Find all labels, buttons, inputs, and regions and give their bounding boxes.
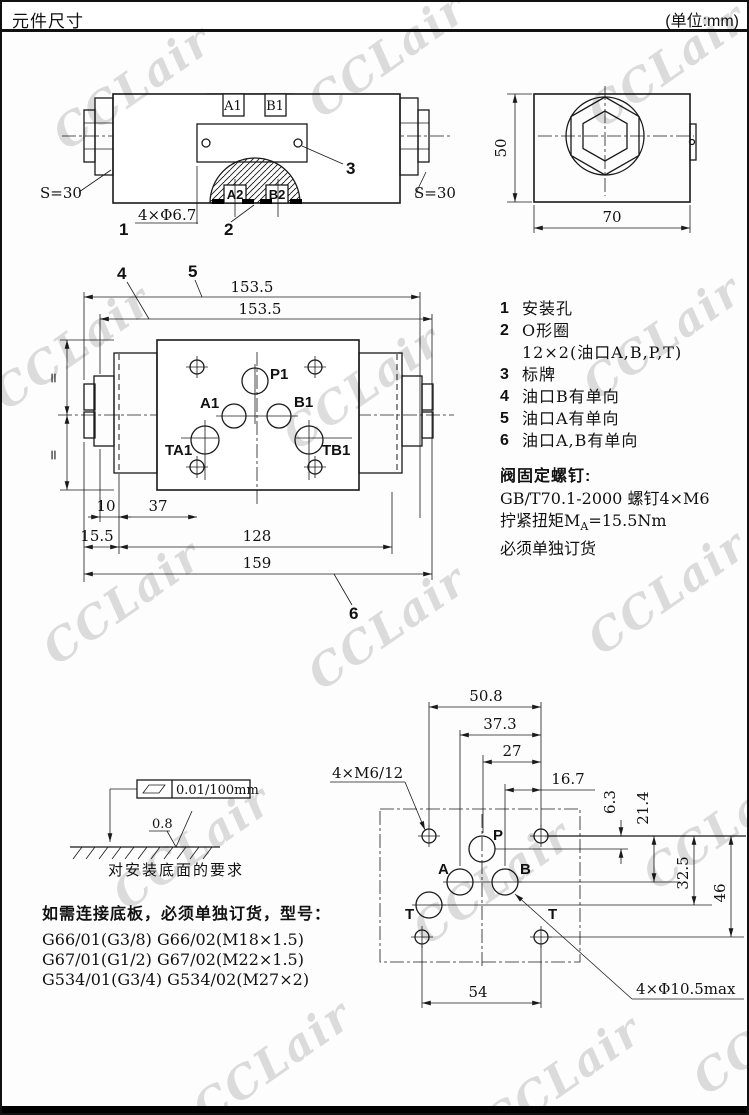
port-a-label: A <box>438 861 449 878</box>
nameplate <box>197 124 307 162</box>
subplate-intro: 如需连接底板，必须单独订货，型号： <box>42 900 372 924</box>
side-view-drawing: A1 B1 3 A2 B2 2 4×Φ6.7 1 <box>40 94 456 239</box>
oring-seal <box>212 199 224 204</box>
dim-153-top: 153.5 <box>231 278 274 296</box>
callout-2: 2 <box>224 220 233 239</box>
face-body-outline <box>157 340 359 490</box>
note-item: 2O形圈 <box>500 320 749 342</box>
bottom-border-bar <box>2 1106 747 1113</box>
oring-seal <box>290 199 302 204</box>
port-b1-top-label: B1 <box>266 99 284 114</box>
subplate-model: G534/01(G3/4) G534/02(M27×2) <box>42 970 372 990</box>
callout-5: 5 <box>188 262 197 281</box>
oring-seal <box>260 199 272 204</box>
fixing-screw-note: 阀固定螺钉: GB/T70.1-2000 螺钉4×M6 拧紧扭矩MA=15.5N… <box>500 466 749 560</box>
order-note: 必须单独订货 <box>500 538 749 560</box>
callout-6: 6 <box>349 604 358 623</box>
subplate-order-note: 如需连接底板，必须单独订货，型号： G66/01(G3/8) G66/02(M1… <box>42 900 372 990</box>
dim-15-5: 15.5 <box>80 527 113 545</box>
hex-size-right: S=30 <box>414 184 456 202</box>
note-item: 6油口A,B有单向 <box>500 430 749 452</box>
ground-hatch <box>73 847 212 859</box>
hex-size-left: S=30 <box>40 184 82 202</box>
dim-37-3: 37.3 <box>483 715 516 733</box>
end-view-drawing: 50 70 <box>492 86 696 233</box>
dim-50-8: 50.8 <box>469 687 502 705</box>
port-t-left-label: T <box>405 906 414 923</box>
oring-seal <box>242 199 254 204</box>
bottom-ports <box>412 836 522 918</box>
note-item: 1安装孔 <box>500 298 749 320</box>
dim-27: 27 <box>502 742 521 760</box>
equal-mark-top: = <box>46 372 62 384</box>
screw-note-title: 阀固定螺钉: <box>500 466 749 488</box>
sheet-header: 元件尺寸 (单位:mm) <box>2 2 747 32</box>
port-a1-label: A1 <box>200 395 219 412</box>
torque-spec: 拧紧扭矩MA=15.5Nm <box>500 510 749 538</box>
subplate-model: G66/01(G3/8) G66/02(M18×1.5) <box>42 930 372 950</box>
dim-32-5: 32.5 <box>674 856 692 889</box>
callout-3: 3 <box>346 159 355 178</box>
flatness-symbol: 0.01/100mm 0.8 <box>70 780 259 859</box>
unit-label: (单位:mm) <box>665 7 739 31</box>
dim-70: 70 <box>602 208 621 226</box>
port-p-label: P <box>493 827 503 844</box>
port-b1-label: B1 <box>294 394 313 411</box>
port-ta1-label: TA1 <box>165 442 192 459</box>
note-item: 5油口A有单向 <box>500 408 749 430</box>
dim-128: 128 <box>243 527 272 545</box>
flatness-tolerance: 0.01/100mm <box>176 783 259 798</box>
note-item: 3标牌 <box>500 364 749 386</box>
mounting-surface-caption: 对安装底面的要求 <box>108 859 244 880</box>
port-b-label: B <box>520 861 531 878</box>
face-view-drawing: P1 A1 B1 TA1 TB1 153.5 153.5 4 5 = <box>46 262 454 623</box>
mounting-hole-dim: 4×Φ6.7 <box>138 206 196 224</box>
port-diameter-label: 4×Φ10.5max <box>636 980 736 998</box>
dim-54: 54 <box>468 983 487 1001</box>
item-notes-list: 1安装孔 2O形圈 12×2(油口A,B,P,T) 3标牌 4油口B有单向 5油… <box>500 298 749 452</box>
mounting-face-outline <box>380 809 580 962</box>
port-p1-label: P1 <box>270 366 288 383</box>
note-item: 12×2(油口A,B,P,T) <box>500 342 749 364</box>
dim-50: 50 <box>492 138 510 157</box>
note-item: 4油口B有单向 <box>500 386 749 408</box>
dim-21-4: 21.4 <box>634 791 652 824</box>
page-title: 元件尺寸 <box>12 7 84 32</box>
dim-159: 159 <box>243 554 272 572</box>
dim-6-3: 6.3 <box>601 790 619 814</box>
drawing-sheet: 元件尺寸 (单位:mm) <box>0 0 749 1115</box>
equal-mark-bottom: = <box>46 449 62 461</box>
bolt-thread-label: 4×M6/12 <box>332 764 403 782</box>
bolt-holes <box>411 825 552 948</box>
callout-4: 4 <box>117 264 127 283</box>
dim-153-bottom: 153.5 <box>239 300 282 318</box>
dim-46: 46 <box>711 883 729 902</box>
roughness-value: 0.8 <box>152 817 173 832</box>
callout-1: 1 <box>119 220 128 239</box>
dim-37: 37 <box>148 497 167 515</box>
subplate-model: G67/01(G1/2) G67/02(M22×1.5) <box>42 950 372 970</box>
dim-10: 10 <box>96 497 115 515</box>
dim-16-7: 16.7 <box>551 770 584 788</box>
port-a1-top-label: A1 <box>223 99 242 114</box>
port-t-right-label: T <box>548 906 557 923</box>
port-tb1-label: TB1 <box>322 442 350 459</box>
screw-spec: GB/T70.1-2000 螺钉4×M6 <box>500 488 749 510</box>
bottom-view-drawing: P A B T T 50.8 37.3 27 16.7 <box>330 687 746 1008</box>
